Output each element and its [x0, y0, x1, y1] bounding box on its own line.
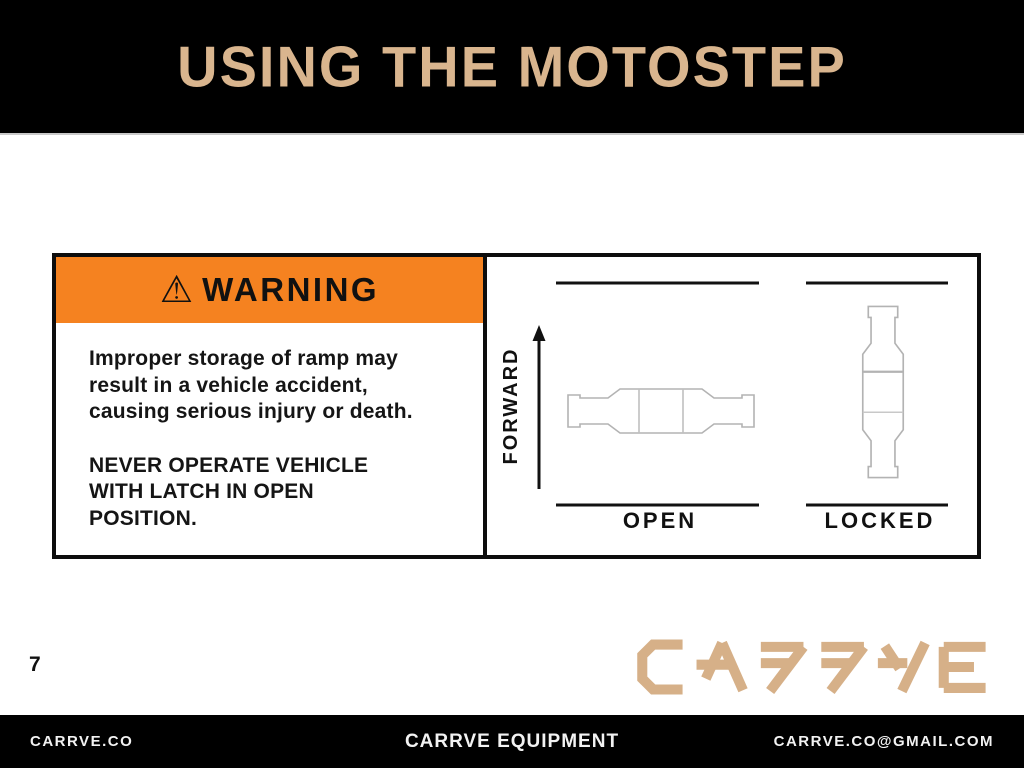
- open-state-label: OPEN: [560, 508, 760, 534]
- latch-locked-drawing: [863, 306, 903, 477]
- forward-arrow: [533, 325, 546, 489]
- latch-diagram: FORWARD OPEN LOCKED: [487, 257, 977, 555]
- slide: USING THE MOTOSTEP ⚠ WARNING Improper st…: [0, 0, 1024, 768]
- footer-email: CARRVE.CO@GMAIL.COM: [774, 733, 994, 750]
- footer-website: CARRVE.CO: [30, 733, 133, 750]
- latch-open-drawing: [568, 389, 754, 433]
- header-bar: USING THE MOTOSTEP: [0, 0, 1024, 135]
- forward-direction-label: FORWARD: [500, 326, 524, 486]
- warning-header: ⚠ WARNING: [56, 257, 483, 323]
- warning-heading: WARNING: [202, 271, 379, 309]
- warning-triangle-icon: ⚠: [160, 271, 193, 308]
- warning-paragraph-2: NEVER OPERATE VEHICLE WITH LATCH IN OPEN…: [89, 453, 457, 533]
- carrve-logo-art: [614, 636, 1010, 698]
- warning-panel: ⚠ WARNING Improper storage of ramp may r…: [52, 253, 487, 559]
- warning-paragraph-1: Improper storage of ramp may result in a…: [89, 346, 457, 426]
- latch-diagram-panel: FORWARD OPEN LOCKED: [483, 253, 981, 559]
- locked-state-label: LOCKED: [780, 508, 980, 534]
- content-boxes: ⚠ WARNING Improper storage of ramp may r…: [52, 253, 985, 559]
- warning-body: Improper storage of ramp may result in a…: [56, 323, 483, 532]
- page-title: USING THE MOTOSTEP: [177, 33, 847, 99]
- carrve-logo: CARRVE: [614, 636, 1010, 698]
- page-number: 7: [29, 653, 41, 677]
- footer-bar: CARRVE.CO CARRVE EQUIPMENT CARRVE.CO@GMA…: [0, 715, 1024, 768]
